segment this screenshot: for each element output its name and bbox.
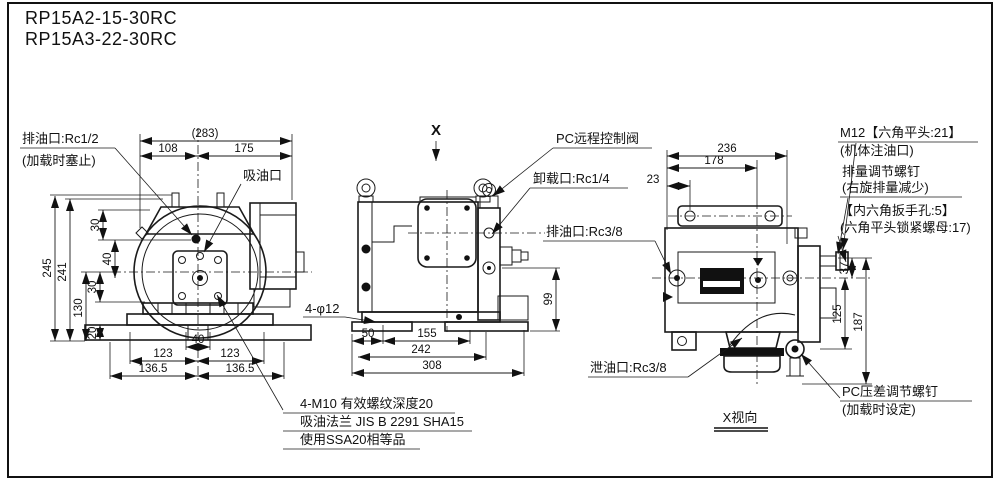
dim-245: 245	[42, 258, 54, 277]
body-bolt-dot	[362, 245, 371, 254]
model-number-1: RP15A2-15-30RC	[25, 8, 177, 28]
dim-175: 175	[234, 143, 253, 155]
drain-port-dot	[192, 235, 201, 244]
drawing-page: RP15A2-15-30RC RP15A3-22-30RC	[0, 0, 1000, 481]
note-suction-flange: 吸油法兰 JIS B 2291 SHA15	[300, 414, 464, 429]
mount-holes-label: 4-φ12	[305, 301, 339, 316]
dim-236: 236	[717, 143, 736, 155]
dim-155: 155	[417, 328, 436, 340]
dim-30-lower: 30	[87, 281, 99, 294]
dim-125: 125	[832, 304, 844, 323]
dim-108: 108	[158, 143, 177, 155]
pc-diff-screw-label: PC压差调节螺钉	[842, 384, 938, 399]
x-direction-marker: X	[431, 122, 441, 139]
unload-port-label: 卸载口:Rc1/4	[533, 171, 610, 186]
lock-nut-label: (六角平头锁紧螺母:17)	[840, 220, 971, 235]
dim-123-left: 123	[153, 348, 172, 360]
model-number-2: RP15A3-22-30RC	[25, 29, 177, 49]
hex-wrench-hole-label: 【内六角扳手孔:5】	[840, 203, 955, 218]
dim-37: 37	[839, 262, 851, 275]
foot-hole	[456, 314, 462, 320]
dim-40-bottom: 40	[192, 334, 205, 346]
leak-port-label: 泄油口:Rc3/8	[590, 360, 667, 375]
dim-1365-left: 136.5	[139, 363, 168, 375]
drain-port-rc38-label: 排油口:Rc3/8	[546, 224, 623, 239]
dim-242: 242	[411, 344, 430, 356]
dim-187: 187	[853, 312, 865, 331]
drain-port-note: (加载时塞止)	[22, 153, 96, 168]
suction-port-center	[197, 275, 203, 281]
dim-20: 20	[87, 327, 99, 340]
dim-130: 130	[73, 298, 85, 317]
drain-port-label: 排油口:Rc1/2	[22, 131, 99, 146]
dim-123-right: 123	[220, 348, 239, 360]
m12-hex-label: M12【六角平头:21】	[840, 125, 961, 140]
dim-241: 241	[57, 262, 69, 281]
suction-port-label: 吸油口	[243, 168, 282, 183]
title-block: RP15A2-15-30RC RP15A3-22-30RC	[25, 8, 177, 49]
suction-flange-face	[720, 348, 784, 356]
dim-overall-width: (283)	[192, 128, 219, 140]
note-equivalent: 使用SSA20相等品	[300, 432, 405, 447]
body-bolt-dot	[362, 283, 371, 292]
dim-178: 178	[704, 155, 723, 167]
displacement-screw-label: 排量调节螺钉	[842, 164, 920, 179]
pc-remote-valve-label: PC远程控制阀	[556, 131, 639, 146]
x-view-caption: X视向	[723, 410, 758, 425]
note-thread-depth: 4-M10 有效螺纹深度20	[300, 396, 433, 411]
dim-1365-right: 136.5	[226, 363, 255, 375]
pc-diff-screw-note: (加载时设定)	[842, 402, 916, 417]
drawing-canvas: RP15A2-15-30RC RP15A3-22-30RC	[0, 0, 1000, 481]
dim-50: 50	[362, 328, 375, 340]
dim-23: 23	[647, 174, 660, 186]
oil-fill-port-note: (机体注油口)	[840, 143, 914, 158]
dim-308: 308	[422, 360, 441, 372]
dim-99: 99	[543, 293, 555, 306]
dim-40-left: 40	[102, 253, 114, 266]
dim-30-upper: 30	[90, 219, 102, 232]
displacement-screw-note: (右旋排量减少)	[842, 180, 929, 195]
